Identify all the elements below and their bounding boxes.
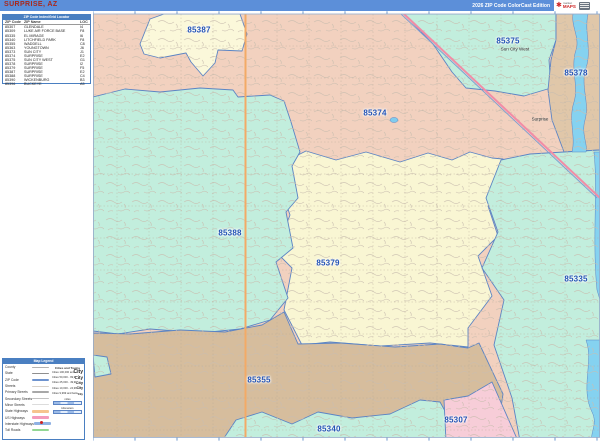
zip-label-85340: 85340 <box>317 425 340 434</box>
title-bar: SURPRISE, AZ 2026 ZIP Code ColorCast Edi… <box>0 0 600 11</box>
scale-kilometers-bar <box>53 410 82 414</box>
zip-label-85307: 85307 <box>444 416 467 425</box>
legend-line-sample <box>32 404 49 405</box>
legend-city-label: Cities 25,000 - 49,999 <box>52 381 76 384</box>
legend-line-label: Toll Roads <box>5 428 20 432</box>
legend-city-sample: City <box>75 375 83 380</box>
legend-line-sample <box>32 391 49 393</box>
zip-label-85379: 85379 <box>316 259 339 268</box>
legend-line-sample <box>32 379 49 381</box>
publisher-logo: ✱ market MAPS <box>554 0 600 11</box>
map-canvas <box>93 11 600 441</box>
legend-line-label: State <box>5 371 13 375</box>
legend-line-label: Streets <box>5 384 15 388</box>
logo-chip <box>579 2 590 10</box>
legend-city-label: Cities 100,000 and above <box>52 371 74 374</box>
legend-line-label: Primary Streets <box>5 390 28 394</box>
legend-line-items: CountyStateZIP CodeStreetsPrimary Street… <box>3 364 51 433</box>
legend-line-row: Toll Roads <box>3 427 51 433</box>
legend-city-sample: City <box>77 386 83 390</box>
col-zip-code: ZIP Code <box>5 20 24 24</box>
legend-city-label: Cities 10,000 - 24,999 <box>52 387 77 390</box>
zip-index-panel: ZIP Code Index/Grid Locator ZIP Code ZIP… <box>2 14 91 84</box>
col-loc: LOC <box>80 20 88 24</box>
map-poster: SURPRISE, AZ 2026 ZIP Code ColorCast Edi… <box>0 0 600 441</box>
city-label-surprise: Surprise <box>532 117 549 122</box>
legend-line-label: Interstate Highways <box>5 422 34 426</box>
col-zip-name: ZIP Name <box>24 20 80 24</box>
edition-label: 2026 ZIP Code ColorCast Edition <box>472 3 550 9</box>
zip-index-rows: 85307GLENDALEI485309LUKE AIR FORCE BASEF… <box>3 25 90 86</box>
legend-city-label: Cities 9,999 and below <box>52 392 78 395</box>
legend-cities-column: Cities and Towns Cities 100,000 and abov… <box>51 364 84 433</box>
logo-mark-icon: ✱ <box>556 2 562 9</box>
zip-label-85335: 85335 <box>564 275 587 284</box>
zip-label-85387: 85387 <box>187 26 210 35</box>
zip-label-85374: 85374 <box>363 109 386 118</box>
street-texture <box>93 14 600 437</box>
zip-label-85378: 85378 <box>564 69 587 78</box>
zip-label-85388: 85388 <box>218 229 241 238</box>
legend-city-sample: City <box>78 392 83 396</box>
legend-line-sample <box>32 416 49 419</box>
legend-line-label: County <box>5 365 15 369</box>
scale-miles-bar <box>53 401 82 405</box>
legend-city-label: Cities 50,000 - 99,999 <box>52 376 75 379</box>
legend-line-sample <box>32 386 49 387</box>
zip-label-85355: 85355 <box>247 376 270 385</box>
legend-line-sample <box>32 398 49 399</box>
zip-label-85375: 85375 <box>496 37 519 46</box>
legend-line-label: US Highways <box>5 416 25 420</box>
city-label-sun-city-west: Sun City West <box>501 47 529 52</box>
map-legend-panel: Map Legend CountyStateZIP CodeStreetsPri… <box>2 358 85 440</box>
legend-line-sample <box>32 429 49 432</box>
legend-city-row: Cities 9,999 and belowCity <box>51 391 84 396</box>
logo-brand-bottom: MAPS <box>563 5 576 10</box>
legend-line-sample <box>34 422 51 425</box>
zip-code-cell: 85396 <box>5 82 24 86</box>
legend-city-sample: City <box>76 380 83 385</box>
zip-index-row: 85396BUCKEYEA5 <box>3 82 90 86</box>
legend-line-label: State Highways <box>5 409 28 413</box>
legend-line-sample <box>32 373 49 375</box>
frame-bottom <box>93 437 600 441</box>
legend-line-label: Secondary Streets <box>5 397 32 401</box>
interstate-shield-icon <box>40 421 43 424</box>
legend-city-rows: Cities 100,000 and aboveCityCities 50,00… <box>51 370 84 397</box>
scale-bar-kilometers: kilometers <box>53 407 82 414</box>
lake <box>390 118 398 123</box>
zip-loc-cell: A5 <box>80 82 88 86</box>
legend-line-sample <box>32 367 49 368</box>
legend-line-label: Minor Streets <box>5 403 25 407</box>
map-title: SURPRISE, AZ <box>4 1 58 8</box>
zip-name-cell: BUCKEYE <box>24 82 80 86</box>
legend-line-label: ZIP Code <box>5 378 19 382</box>
legend-line-sample <box>32 410 49 413</box>
scale-bar-miles: miles <box>53 398 82 405</box>
